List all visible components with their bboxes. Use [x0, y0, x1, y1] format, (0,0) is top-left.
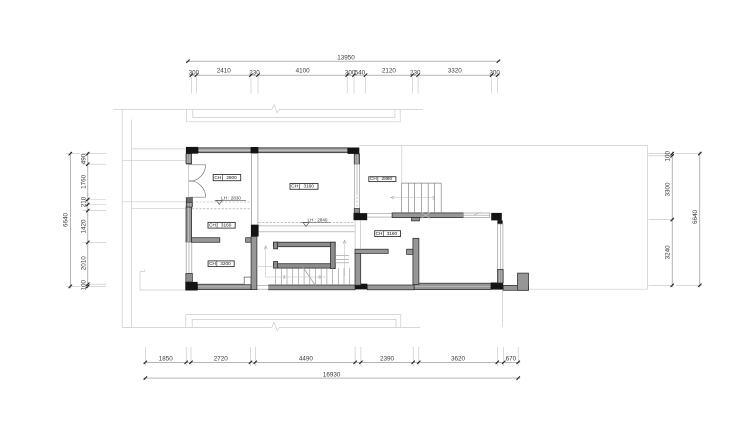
- svg-text:1850: 1850: [159, 355, 174, 362]
- svg-text:3240: 3240: [665, 245, 672, 260]
- svg-text:4100: 4100: [296, 68, 311, 75]
- svg-text:3160: 3160: [221, 223, 232, 228]
- svg-text:1420: 1420: [81, 219, 88, 234]
- svg-text:540: 540: [355, 70, 366, 77]
- svg-text:CH: CH: [209, 223, 216, 228]
- svg-text:100: 100: [665, 151, 672, 162]
- svg-text:6640: 6640: [63, 213, 70, 228]
- svg-text:13950: 13950: [337, 55, 355, 62]
- svg-text:1760: 1760: [81, 174, 88, 189]
- svg-text:LH : 2830: LH : 2830: [221, 196, 241, 201]
- svg-text:300: 300: [489, 70, 500, 77]
- svg-text:CH: CH: [370, 176, 377, 181]
- svg-text:4490: 4490: [299, 355, 314, 362]
- svg-text:3320: 3320: [448, 68, 463, 75]
- svg-text:3300: 3300: [665, 182, 672, 197]
- svg-text:230: 230: [249, 70, 260, 77]
- svg-text:2720: 2720: [214, 355, 229, 362]
- svg-text:2120: 2120: [382, 68, 397, 75]
- svg-text:2390: 2390: [380, 355, 395, 362]
- svg-text:16930: 16930: [323, 371, 341, 378]
- svg-text:210: 210: [81, 196, 88, 207]
- svg-text:2880: 2880: [382, 176, 393, 181]
- svg-text:3160: 3160: [303, 184, 314, 189]
- svg-text:100: 100: [81, 280, 88, 291]
- svg-text:670: 670: [506, 355, 517, 362]
- svg-text:3200: 3200: [220, 261, 231, 266]
- svg-text:3620: 3620: [451, 355, 466, 362]
- svg-text:CH: CH: [291, 184, 298, 189]
- svg-text:230: 230: [410, 70, 421, 77]
- svg-text:CH: CH: [214, 175, 221, 180]
- svg-text:CH: CH: [209, 261, 216, 266]
- svg-text:6640: 6640: [692, 210, 699, 225]
- svg-text:2010: 2010: [81, 256, 88, 271]
- svg-text:300: 300: [189, 70, 200, 77]
- svg-text:2900: 2900: [226, 175, 237, 180]
- svg-text:LH : 2840: LH : 2840: [308, 218, 328, 223]
- svg-text:2410: 2410: [217, 68, 232, 75]
- svg-text:490: 490: [81, 153, 88, 164]
- svg-text:3160: 3160: [387, 231, 398, 236]
- svg-text:CH: CH: [376, 231, 383, 236]
